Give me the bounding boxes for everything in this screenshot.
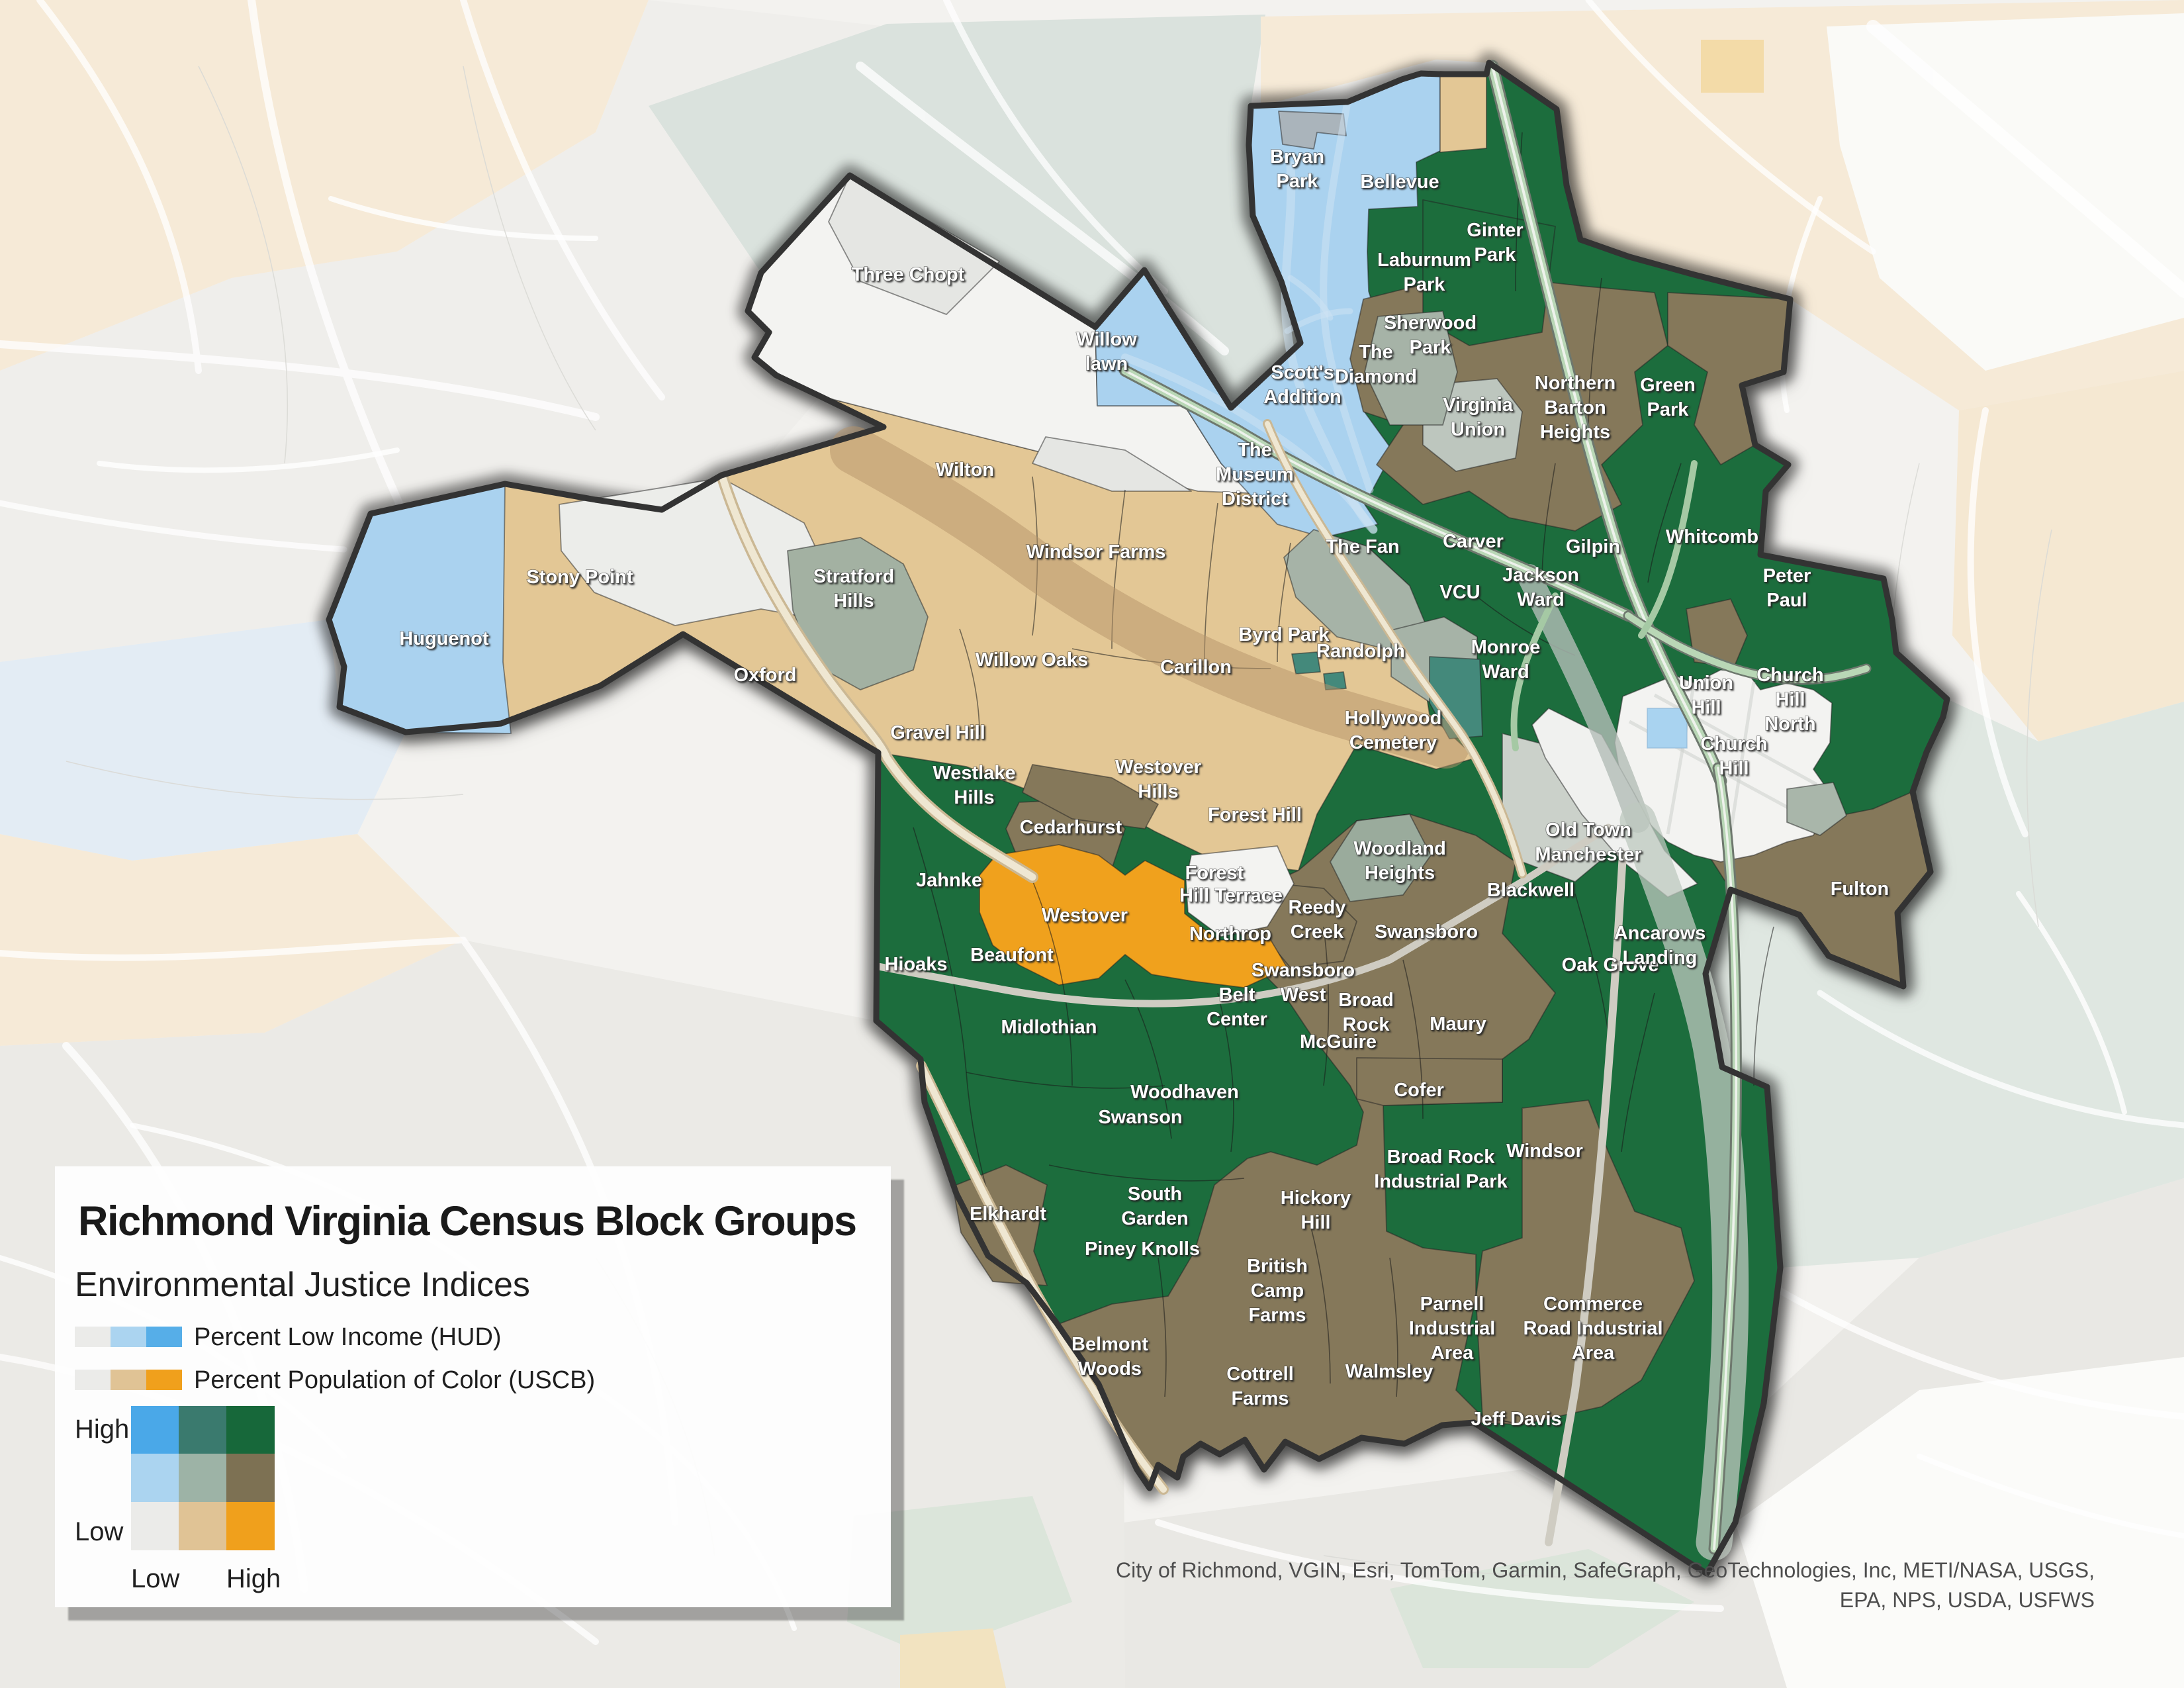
svg-text:Hills: Hills [1138,781,1178,802]
svg-text:Piney Knolls: Piney Knolls [1085,1239,1200,1260]
svg-text:Swanson: Swanson [1098,1107,1182,1128]
svg-text:Broad: Broad [1338,990,1394,1011]
svg-text:Ward: Ward [1517,589,1564,610]
svg-text:Area: Area [1572,1342,1615,1364]
svg-text:Three Chopt: Three Chopt [852,264,965,285]
svg-text:The: The [1238,440,1272,461]
svg-text:West: West [1281,984,1326,1006]
svg-text:High: High [226,1564,281,1593]
svg-text:Hill: Hill [1691,697,1721,718]
svg-text:Farms: Farms [1248,1305,1306,1326]
svg-text:Hickory: Hickory [1281,1188,1351,1209]
svg-text:Willow Oaks: Willow Oaks [976,649,1089,671]
svg-text:Gravel Hill: Gravel Hill [890,722,985,743]
svg-text:lawn: lawn [1085,353,1128,375]
svg-text:Laburnum: Laburnum [1377,250,1471,271]
svg-text:Church: Church [1700,733,1768,755]
svg-text:Swansboro: Swansboro [1251,960,1355,981]
svg-text:Old Town: Old Town [1545,820,1631,841]
svg-text:Northern: Northern [1535,373,1615,394]
svg-text:Landing: Landing [1623,947,1698,968]
svg-text:Reedy: Reedy [1288,897,1345,918]
svg-text:Randolph: Randolph [1316,641,1405,662]
svg-text:Richmond Virginia Census Block: Richmond Virginia Census Block Groups [78,1198,856,1244]
svg-text:Jeff Davis: Jeff Davis [1471,1409,1561,1430]
svg-text:Jackson: Jackson [1502,565,1579,586]
svg-text:Hills: Hills [954,787,994,808]
svg-text:Green: Green [1640,375,1696,396]
svg-text:The Fan: The Fan [1326,536,1399,557]
svg-text:Fulton: Fulton [1831,878,1889,900]
svg-text:Belt: Belt [1219,984,1255,1006]
svg-text:The: The [1359,342,1393,363]
svg-text:Ward: Ward [1482,661,1529,682]
svg-text:Parnell: Parnell [1420,1293,1484,1315]
svg-text:Manchester: Manchester [1535,844,1641,865]
svg-text:Woodland: Woodland [1353,838,1446,859]
svg-text:Westlake: Westlake [933,763,1015,784]
svg-text:Maury: Maury [1430,1013,1486,1035]
svg-text:Blackwell: Blackwell [1487,880,1574,901]
svg-text:Hill Terrace: Hill Terrace [1179,885,1283,906]
svg-text:Union: Union [1679,673,1733,694]
svg-text:Paul: Paul [1766,590,1807,611]
svg-text:Cofer: Cofer [1394,1080,1444,1101]
svg-text:Addition: Addition [1263,387,1342,408]
svg-text:Bryan: Bryan [1270,146,1324,167]
svg-text:Park: Park [1404,274,1446,295]
svg-text:Hill: Hill [1300,1212,1330,1233]
svg-text:Creek: Creek [1291,921,1344,943]
svg-text:Camp: Camp [1251,1280,1304,1301]
svg-text:District: District [1222,489,1288,510]
svg-text:Industrial: Industrial [1409,1318,1496,1339]
svg-text:Wilton: Wilton [936,459,994,481]
svg-text:Midlothian: Midlothian [1001,1017,1097,1038]
svg-text:Heights: Heights [1540,422,1610,443]
svg-text:Peter: Peter [1763,565,1811,586]
svg-text:Union: Union [1451,419,1505,440]
svg-text:Diamond: Diamond [1335,366,1417,387]
svg-text:Park: Park [1647,399,1690,420]
svg-text:British: British [1247,1256,1308,1277]
svg-text:South: South [1128,1184,1182,1205]
svg-text:Virginia: Virginia [1443,395,1514,416]
svg-text:Environmental Justice Indices: Environmental Justice Indices [75,1266,530,1304]
svg-text:Carillon: Carillon [1160,657,1232,678]
svg-text:Commerce: Commerce [1543,1293,1643,1315]
svg-text:Jahnke: Jahnke [916,870,982,891]
svg-text:Northrop: Northrop [1189,923,1271,945]
svg-text:Monroe: Monroe [1471,637,1541,658]
svg-text:Carver: Carver [1443,531,1504,552]
svg-text:Hollywood: Hollywood [1345,708,1442,729]
svg-text:Farms: Farms [1231,1388,1289,1409]
svg-text:North: North [1764,714,1815,735]
svg-text:Oxford: Oxford [733,665,796,686]
svg-text:Church: Church [1756,665,1824,686]
svg-text:Museum: Museum [1216,464,1294,485]
svg-text:Stratford: Stratford [813,566,894,587]
svg-text:Center: Center [1206,1009,1267,1030]
svg-text:Park: Park [1475,244,1517,265]
svg-text:Cemetery: Cemetery [1349,732,1437,753]
svg-text:Elkhardt: Elkhardt [970,1203,1046,1225]
svg-text:Hill: Hill [1775,689,1805,710]
svg-text:Gilpin: Gilpin [1566,536,1620,557]
svg-text:Garden: Garden [1121,1208,1189,1229]
svg-text:Ancarows: Ancarows [1614,923,1706,944]
svg-text:Ginter: Ginter [1467,220,1523,241]
svg-text:Park: Park [1277,171,1319,192]
svg-text:Westover: Westover [1115,757,1201,778]
svg-text:Forest Hill: Forest Hill [1208,804,1302,825]
svg-text:Forest: Forest [1185,863,1244,884]
svg-text:Walmsley: Walmsley [1345,1361,1433,1382]
svg-text:Hill: Hill [1719,758,1749,779]
svg-text:Westover: Westover [1042,905,1128,926]
svg-text:Beaufont: Beaufont [970,945,1054,966]
svg-text:Whitcomb: Whitcomb [1666,526,1758,547]
svg-text:Percent Population of Color (U: Percent Population of Color (USCB) [194,1366,595,1394]
svg-text:Willow: Willow [1076,329,1137,350]
svg-text:High: High [75,1415,129,1444]
svg-text:City of Richmond, VGIN, Esri,: City of Richmond, VGIN, Esri, TomTom, Ga… [1116,1558,2095,1582]
svg-text:Huguenot: Huguenot [399,628,489,649]
svg-text:Heights: Heights [1365,863,1435,884]
svg-text:Area: Area [1431,1342,1474,1364]
svg-text:Windsor Farms: Windsor Farms [1026,541,1166,563]
svg-text:Hills: Hills [833,590,874,612]
svg-text:Stony Point: Stony Point [526,567,633,588]
svg-text:Park: Park [1410,337,1452,358]
svg-text:Bellevue: Bellevue [1360,171,1439,193]
svg-text:Belmont: Belmont [1071,1334,1148,1355]
svg-text:EPA, NPS, USDA, USFWS: EPA, NPS, USDA, USFWS [1840,1588,2095,1612]
svg-text:Hioaks: Hioaks [884,954,947,975]
svg-text:Cedarhurst: Cedarhurst [1020,817,1122,838]
svg-text:Sherwood: Sherwood [1384,312,1477,334]
svg-text:Percent Low Income (HUD): Percent Low Income (HUD) [194,1323,502,1351]
svg-text:McGuire: McGuire [1300,1031,1377,1053]
svg-text:Scott's: Scott's [1271,362,1334,383]
svg-text:Low: Low [75,1517,123,1546]
svg-text:Woodhaven: Woodhaven [1130,1082,1239,1103]
svg-text:Road Industrial: Road Industrial [1523,1318,1662,1339]
svg-text:Barton: Barton [1544,397,1606,418]
svg-text:Windsor: Windsor [1506,1141,1583,1162]
svg-text:Swansboro: Swansboro [1375,921,1478,943]
svg-text:Cottrell: Cottrell [1226,1364,1294,1385]
svg-text:Industrial Park: Industrial Park [1374,1171,1508,1192]
svg-text:Low: Low [131,1564,179,1593]
svg-text:VCU: VCU [1439,582,1480,603]
svg-text:Broad Rock: Broad Rock [1387,1147,1496,1168]
svg-text:Woods: Woods [1078,1358,1142,1380]
